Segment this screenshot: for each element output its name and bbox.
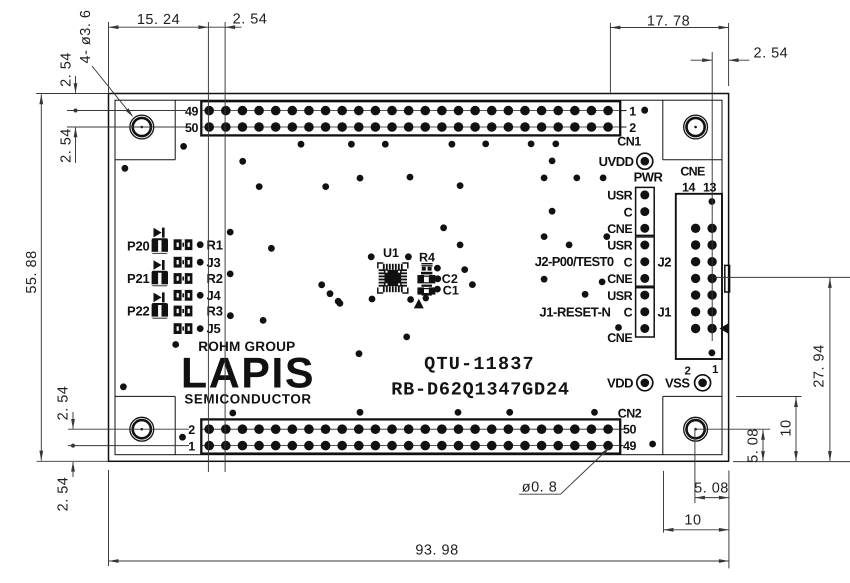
svg-text:QTU-11837: QTU-11837 xyxy=(424,354,535,375)
svg-text:55. 88: 55. 88 xyxy=(24,250,40,293)
svg-text:4- ø3. 6: 4- ø3. 6 xyxy=(78,10,94,64)
svg-text:50: 50 xyxy=(185,121,198,135)
svg-text:13: 13 xyxy=(703,181,716,195)
svg-text:P22: P22 xyxy=(127,303,150,318)
svg-text:1: 1 xyxy=(629,105,636,119)
svg-text:J2: J2 xyxy=(658,254,672,269)
svg-text:C: C xyxy=(624,205,633,219)
svg-text:2: 2 xyxy=(188,423,195,437)
svg-text:USR: USR xyxy=(607,239,632,253)
svg-text:5. 08: 5. 08 xyxy=(746,428,762,463)
svg-text:2. 54: 2. 54 xyxy=(59,52,75,87)
svg-text:2. 54: 2. 54 xyxy=(233,12,268,28)
svg-text:49: 49 xyxy=(623,439,636,453)
svg-text:C: C xyxy=(624,255,633,269)
svg-text:2. 54: 2. 54 xyxy=(59,128,75,163)
svg-text:10: 10 xyxy=(684,513,701,529)
svg-text:CN1: CN1 xyxy=(617,134,641,148)
svg-text:R1: R1 xyxy=(207,237,223,252)
svg-text:R2: R2 xyxy=(207,271,223,286)
svg-text:14: 14 xyxy=(682,181,695,195)
svg-text:93. 98: 93. 98 xyxy=(415,543,458,559)
svg-text:2. 54: 2. 54 xyxy=(754,46,789,62)
svg-text:2. 54: 2. 54 xyxy=(56,386,72,421)
svg-text:J1: J1 xyxy=(658,305,672,320)
svg-text:CNE: CNE xyxy=(607,272,632,286)
svg-text:CN2: CN2 xyxy=(618,407,642,421)
svg-text:27. 94: 27. 94 xyxy=(812,344,828,387)
svg-text:2. 54: 2. 54 xyxy=(56,477,72,512)
svg-text:CNE: CNE xyxy=(607,222,632,236)
svg-text:U1: U1 xyxy=(383,246,399,260)
svg-text:17. 78: 17. 78 xyxy=(647,14,690,30)
svg-text:1: 1 xyxy=(188,439,195,453)
svg-text:R4: R4 xyxy=(419,251,435,265)
svg-text:49: 49 xyxy=(185,105,198,119)
svg-text:P21: P21 xyxy=(127,271,150,286)
svg-text:PWR: PWR xyxy=(634,170,664,185)
svg-text:10: 10 xyxy=(779,419,795,436)
svg-text:P20: P20 xyxy=(127,239,150,254)
svg-text:ø0. 8: ø0. 8 xyxy=(522,480,558,496)
svg-text:2: 2 xyxy=(685,365,691,377)
svg-text:SEMICONDUCTOR: SEMICONDUCTOR xyxy=(184,392,311,407)
svg-text:2: 2 xyxy=(629,121,636,135)
svg-text:UVDD: UVDD xyxy=(599,154,634,169)
svg-text:VSS: VSS xyxy=(665,376,690,391)
svg-text:USR: USR xyxy=(607,189,632,203)
svg-text:LAPIS: LAPIS xyxy=(181,350,315,398)
svg-text:USR: USR xyxy=(607,289,632,303)
svg-text:J2-P00/TEST0: J2-P00/TEST0 xyxy=(535,254,614,269)
svg-text:50: 50 xyxy=(623,423,636,437)
svg-text:C1: C1 xyxy=(443,283,459,297)
svg-text:R3: R3 xyxy=(207,304,223,319)
svg-text:C: C xyxy=(624,306,633,320)
svg-text:RB-D62Q1347GD24: RB-D62Q1347GD24 xyxy=(391,380,570,401)
svg-text:CNE: CNE xyxy=(607,331,632,345)
svg-text:J1-RESET-N: J1-RESET-N xyxy=(539,305,610,320)
svg-text:5. 08: 5. 08 xyxy=(694,481,729,497)
svg-text:CNE: CNE xyxy=(680,164,705,178)
svg-text:15. 24: 15. 24 xyxy=(137,12,180,28)
svg-text:VDD: VDD xyxy=(607,376,633,391)
